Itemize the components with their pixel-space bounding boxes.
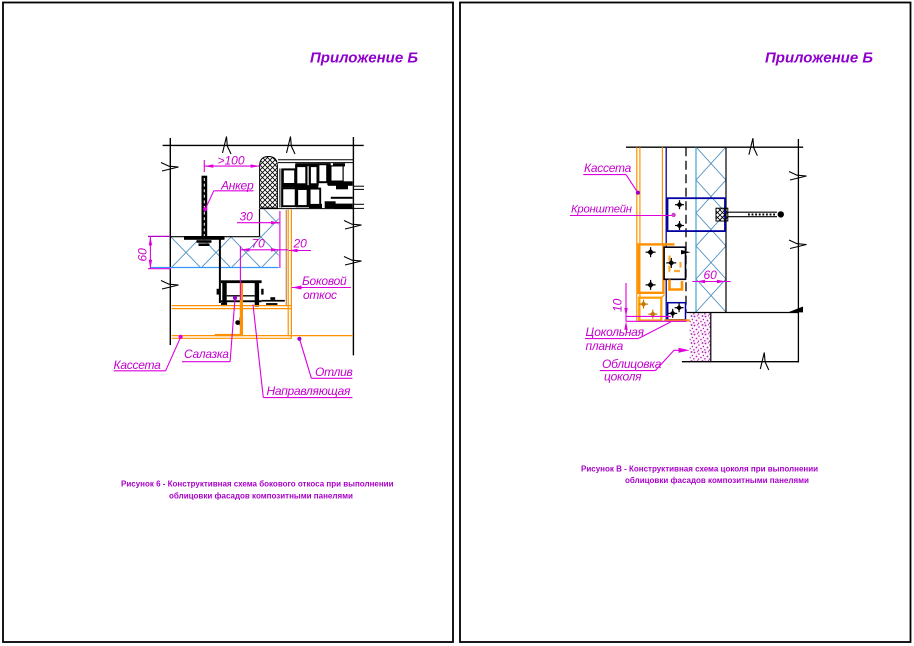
svg-text:20: 20 (293, 237, 308, 251)
svg-text:10: 10 (611, 298, 625, 312)
svg-text:Кассета: Кассета (584, 161, 632, 175)
svg-text:Рисунок 6 - Конструктивная схе: Рисунок 6 - Конструктивная схема боковог… (121, 480, 394, 489)
svg-text:Направляющая: Направляющая (267, 384, 351, 398)
svg-text:Кронштейн: Кронштейн (571, 204, 632, 216)
svg-text:Салазка: Салазка (184, 347, 229, 361)
svg-text:Кассета: Кассета (114, 358, 162, 372)
svg-text:Рисунок В - Конструктивная схе: Рисунок В - Конструктивная схема цоколя … (581, 465, 818, 474)
svg-text:облицовки фасадов композитными: облицовки фасадов композитными панелями (625, 476, 809, 485)
svg-text:Отлив: Отлив (315, 365, 353, 379)
svg-text:60: 60 (704, 268, 718, 282)
svg-text:60: 60 (136, 248, 150, 262)
svg-text:Цокольная: Цокольная (586, 325, 645, 339)
svg-text:цоколя: цоколя (604, 370, 642, 384)
svg-text:30: 30 (240, 210, 254, 224)
svg-text:Боковой: Боковой (302, 274, 347, 288)
svg-text:планка: планка (586, 339, 624, 353)
svg-text:облицовки фасадов композитными: облицовки фасадов композитными панелями (169, 492, 353, 501)
svg-text:откос: откос (303, 288, 337, 302)
svg-text:70: 70 (252, 237, 266, 251)
svg-text:Приложение Б: Приложение Б (310, 50, 418, 67)
svg-text:>100: >100 (218, 154, 245, 168)
svg-text:Приложение Б: Приложение Б (765, 50, 873, 67)
